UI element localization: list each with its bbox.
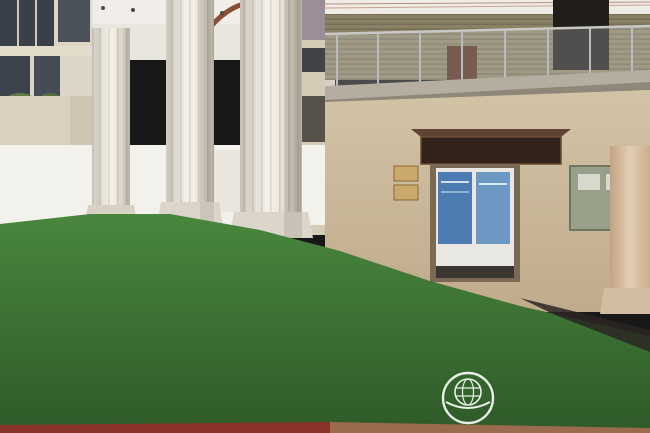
column-left <box>157 0 223 225</box>
poster-right <box>476 172 510 244</box>
column-far <box>86 28 136 218</box>
columns <box>86 0 313 238</box>
column-center <box>229 0 313 238</box>
museum-plaque <box>411 129 571 164</box>
lobby-photo <box>0 0 650 433</box>
museum-door <box>430 164 520 282</box>
photo-canvas <box>0 0 650 433</box>
